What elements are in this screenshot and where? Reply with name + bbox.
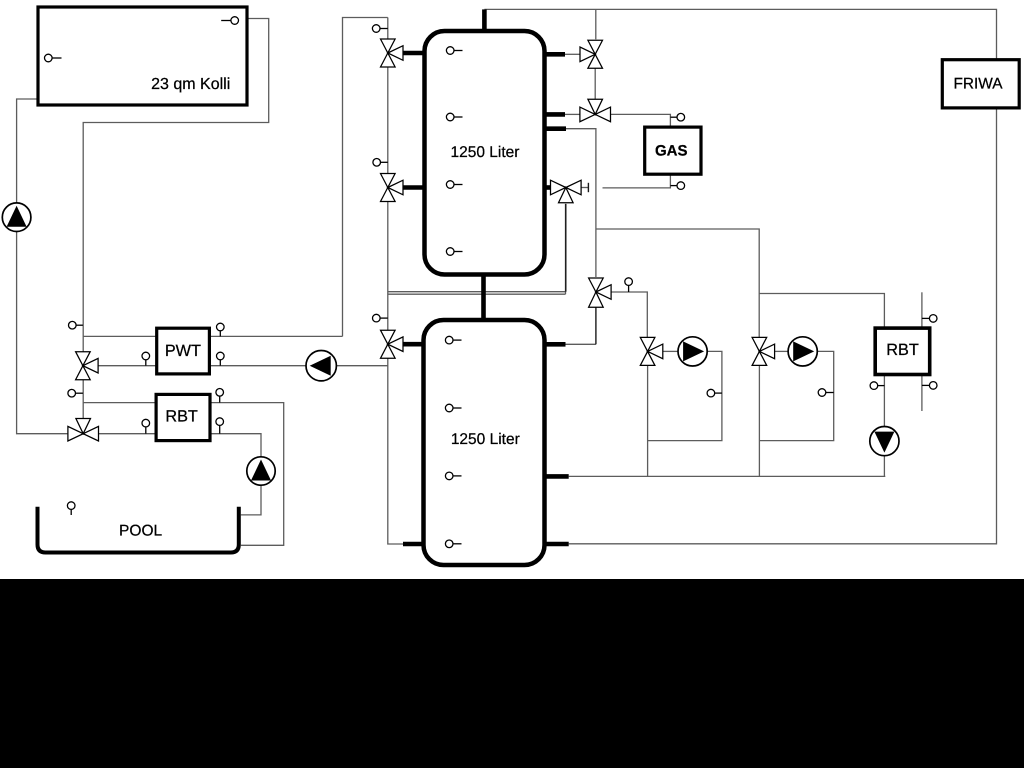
svg-text:23 qm Kolli: 23 qm Kolli	[151, 76, 230, 93]
svg-text:GAS: GAS	[655, 142, 688, 159]
svg-text:RBT: RBT	[165, 408, 198, 426]
svg-text:PWT: PWT	[165, 342, 201, 360]
svg-text:FRIWA: FRIWA	[953, 76, 1003, 93]
svg-text:1250 Liter: 1250 Liter	[451, 431, 520, 448]
svg-text:RBT: RBT	[886, 341, 919, 359]
svg-text:1250 Liter: 1250 Liter	[451, 144, 520, 161]
svg-text:POOL: POOL	[119, 523, 162, 540]
